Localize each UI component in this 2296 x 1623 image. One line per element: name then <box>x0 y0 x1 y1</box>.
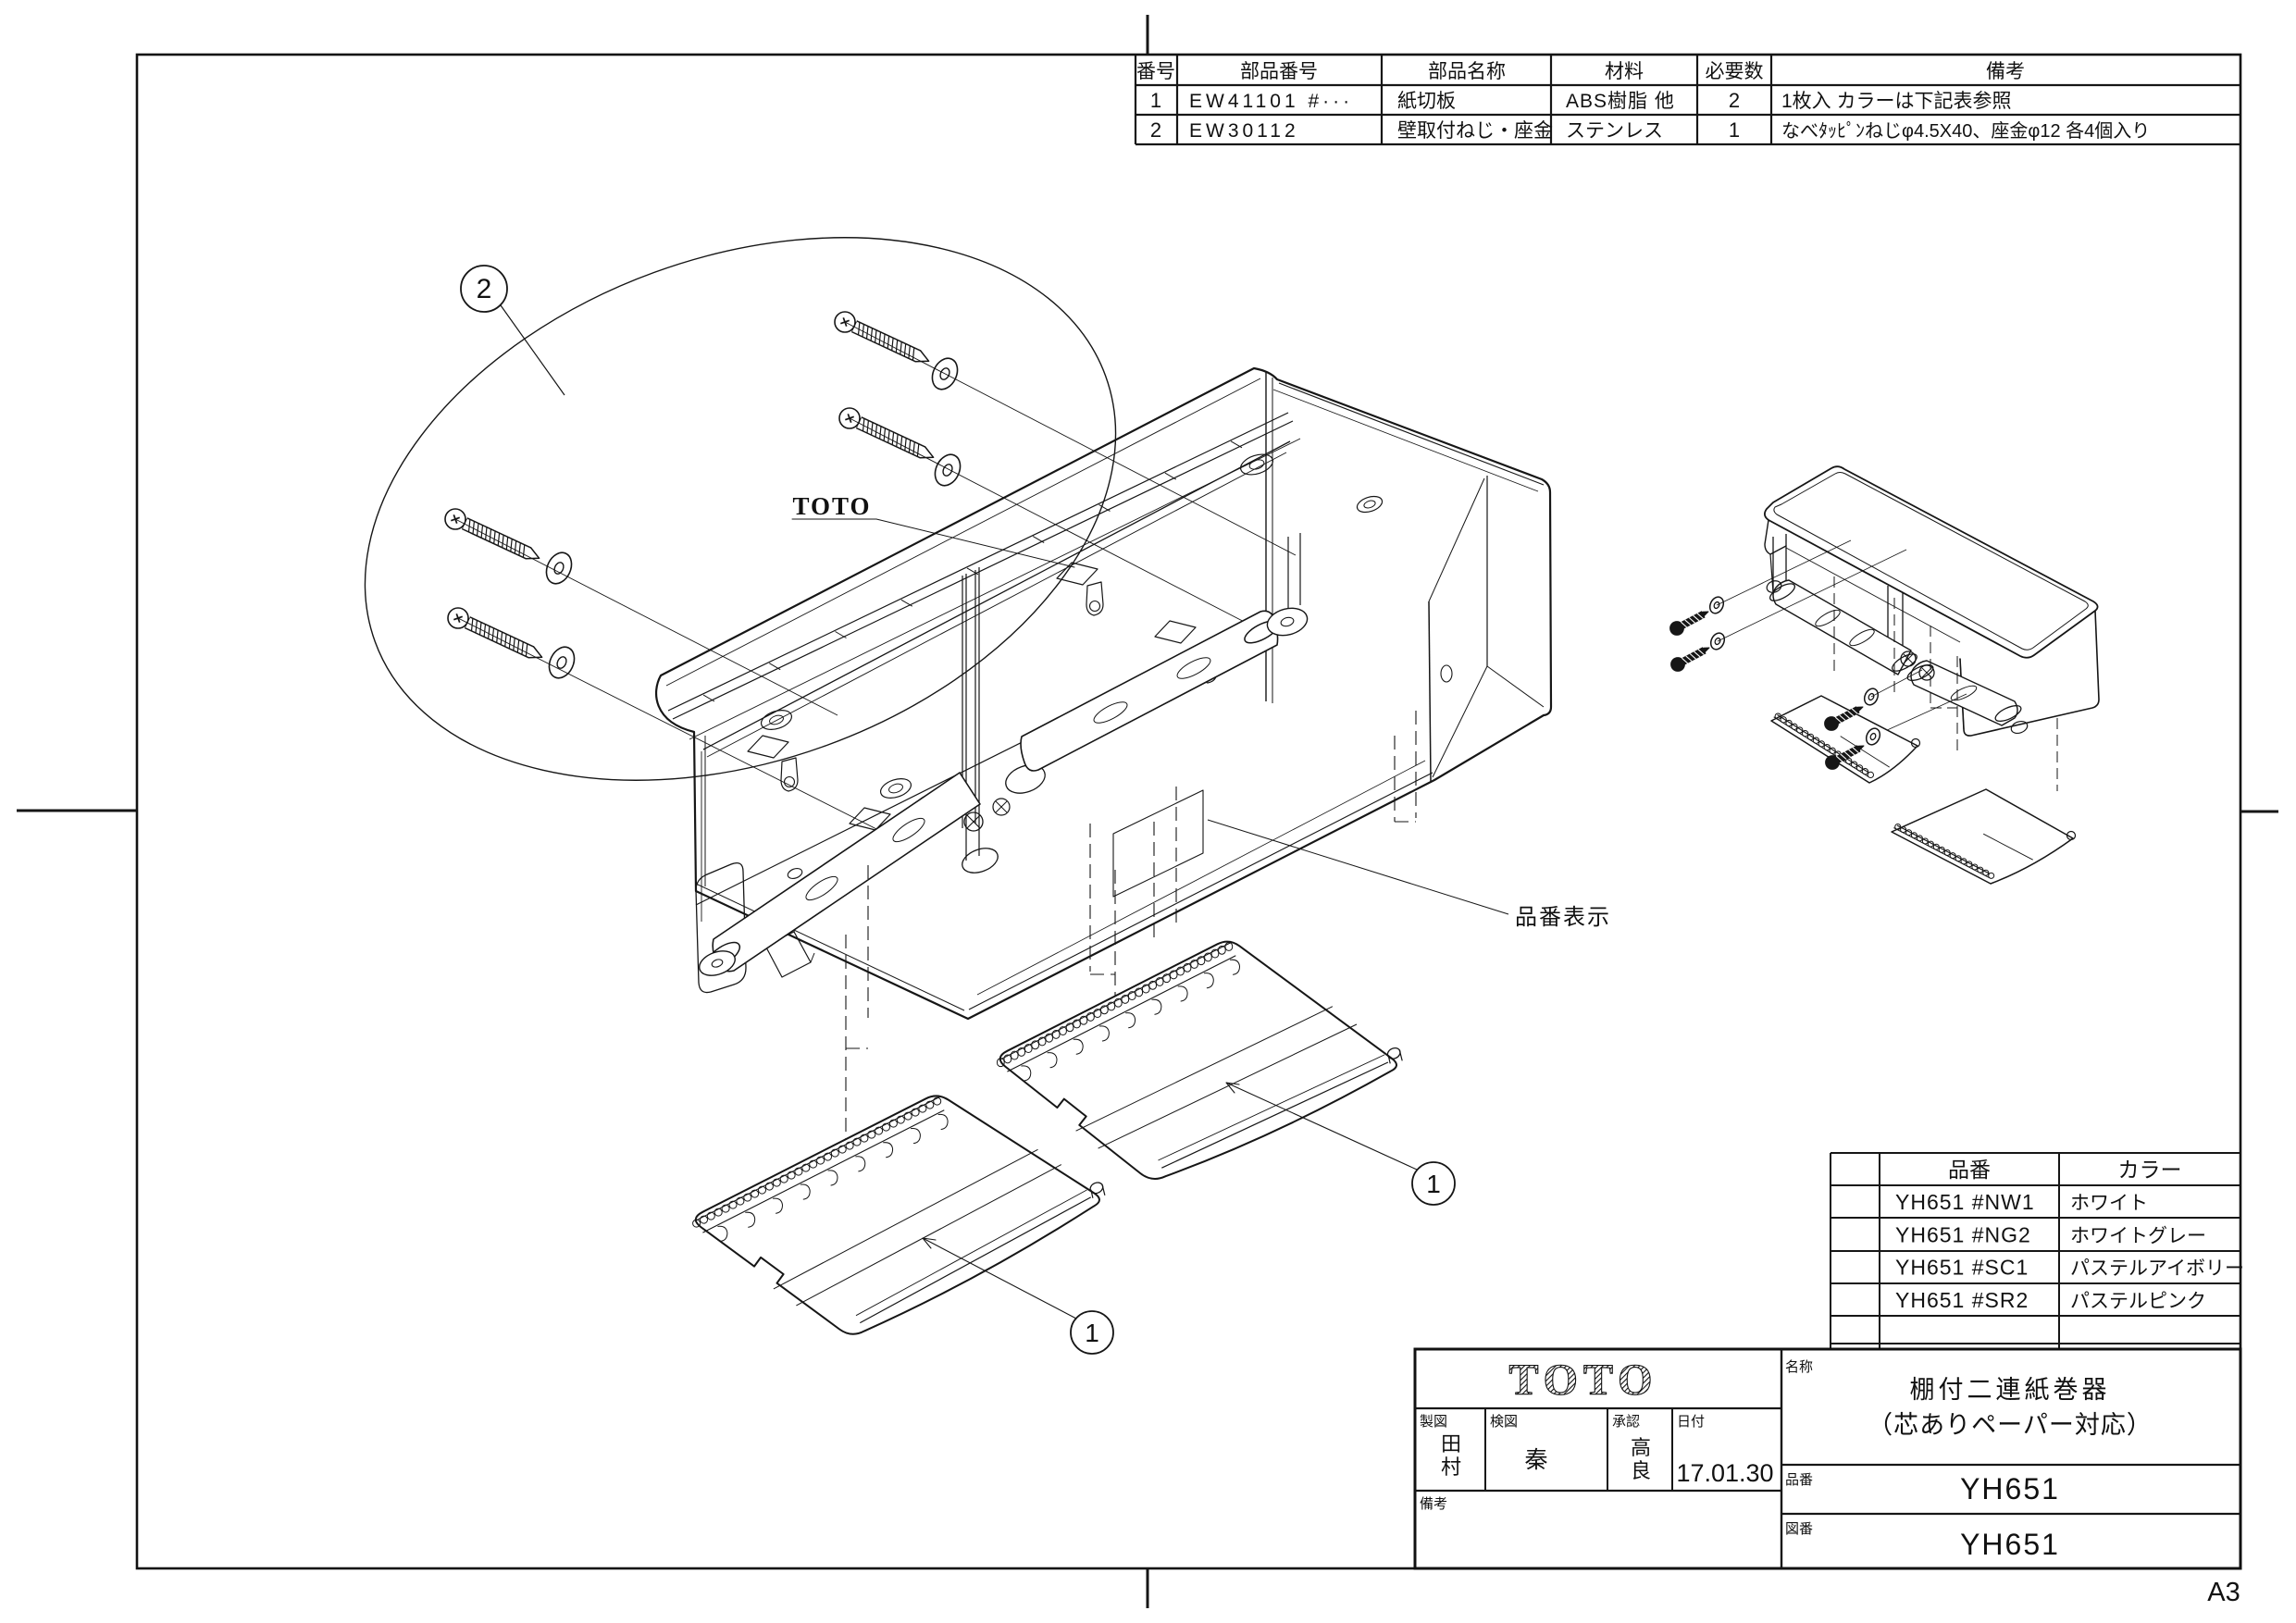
svg-text:品番表示: 品番表示 <box>1515 905 1611 930</box>
svg-text:品番: 品番 <box>1948 1158 1991 1182</box>
svg-text:部品名称: 部品名称 <box>1428 61 1506 82</box>
svg-text:図番: 図番 <box>1785 1521 1813 1537</box>
svg-text:検図: 検図 <box>1490 1414 1518 1430</box>
svg-text:番号: 番号 <box>1136 61 1175 82</box>
svg-text:YH651: YH651 <box>1960 1472 2060 1505</box>
svg-text:ABS樹脂 他: ABS樹脂 他 <box>1566 91 1675 112</box>
svg-text:棚付二連紙巻器: 棚付二連紙巻器 <box>1910 1376 2111 1404</box>
svg-text:ホワイトグレー: ホワイトグレー <box>2070 1225 2206 1246</box>
svg-text:承認: 承認 <box>1612 1414 1640 1430</box>
svg-text:備考: 備考 <box>1420 1496 1447 1512</box>
svg-text:村: 村 <box>1441 1456 1461 1479</box>
svg-text:田: 田 <box>1441 1432 1461 1456</box>
svg-text:高: 高 <box>1631 1436 1651 1459</box>
svg-text:1: 1 <box>1426 1170 1441 1198</box>
svg-text:（芯ありペーパー対応）: （芯ありペーパー対応） <box>1868 1411 2153 1439</box>
svg-text:部品番号: 部品番号 <box>1240 61 1318 82</box>
svg-text:1: 1 <box>1085 1319 1099 1347</box>
svg-text:2: 2 <box>1150 118 1161 142</box>
svg-text:必要数: 必要数 <box>1706 61 1764 82</box>
svg-text:なべﾀｯﾋﾟﾝねじφ4.5X40、座金φ12 各4個入り: なべﾀｯﾋﾟﾝねじφ4.5X40、座金φ12 各4個入り <box>1781 120 2150 142</box>
svg-text:2: 2 <box>477 274 492 304</box>
svg-text:カラー: カラー <box>2118 1158 2182 1182</box>
svg-text:TOTO: TOTO <box>792 492 871 520</box>
svg-text:壁取付ねじ・座金: 壁取付ねじ・座金 <box>1397 120 1553 142</box>
svg-text:1: 1 <box>1150 89 1161 112</box>
svg-text:秦: 秦 <box>1524 1447 1547 1473</box>
svg-text:紙切板: 紙切板 <box>1397 91 1456 112</box>
svg-text:材料: 材料 <box>1605 61 1644 82</box>
svg-text:ホワイト: ホワイト <box>2070 1193 2148 1214</box>
svg-text:1: 1 <box>1729 118 1740 142</box>
svg-text:EW41101 #···: EW41101 #··· <box>1189 91 1353 112</box>
svg-text:品番: 品番 <box>1785 1472 1813 1488</box>
svg-text:パステルアイボリー: パステルアイボリー <box>2070 1258 2244 1280</box>
svg-text:TOTO: TOTO <box>1509 1356 1658 1405</box>
svg-text:YH651: YH651 <box>1960 1528 2060 1561</box>
svg-text:備考: 備考 <box>1986 61 2025 82</box>
svg-text:パステルピンク: パステルピンク <box>2070 1291 2206 1312</box>
svg-text:ステンレス: ステンレス <box>1566 120 1663 142</box>
svg-text:良: 良 <box>1631 1459 1651 1482</box>
svg-text:YH651 #SR2: YH651 #SR2 <box>1895 1288 2029 1312</box>
svg-text:2: 2 <box>1729 89 1740 112</box>
svg-text:A3: A3 <box>2207 1578 2240 1607</box>
svg-text:製図: 製図 <box>1420 1414 1447 1430</box>
svg-text:YH651 #NG2: YH651 #NG2 <box>1895 1222 2031 1246</box>
svg-text:YH651 #SC1: YH651 #SC1 <box>1895 1256 2029 1280</box>
svg-text:1枚入 カラーは下記表参照: 1枚入 カラーは下記表参照 <box>1781 91 2012 112</box>
svg-text:名称: 名称 <box>1785 1359 1813 1375</box>
svg-text:日付: 日付 <box>1677 1414 1705 1430</box>
svg-text:YH651 #NW1: YH651 #NW1 <box>1895 1190 2035 1214</box>
svg-text:EW30112: EW30112 <box>1189 120 1299 142</box>
svg-text:17.01.30: 17.01.30 <box>1676 1459 1773 1487</box>
